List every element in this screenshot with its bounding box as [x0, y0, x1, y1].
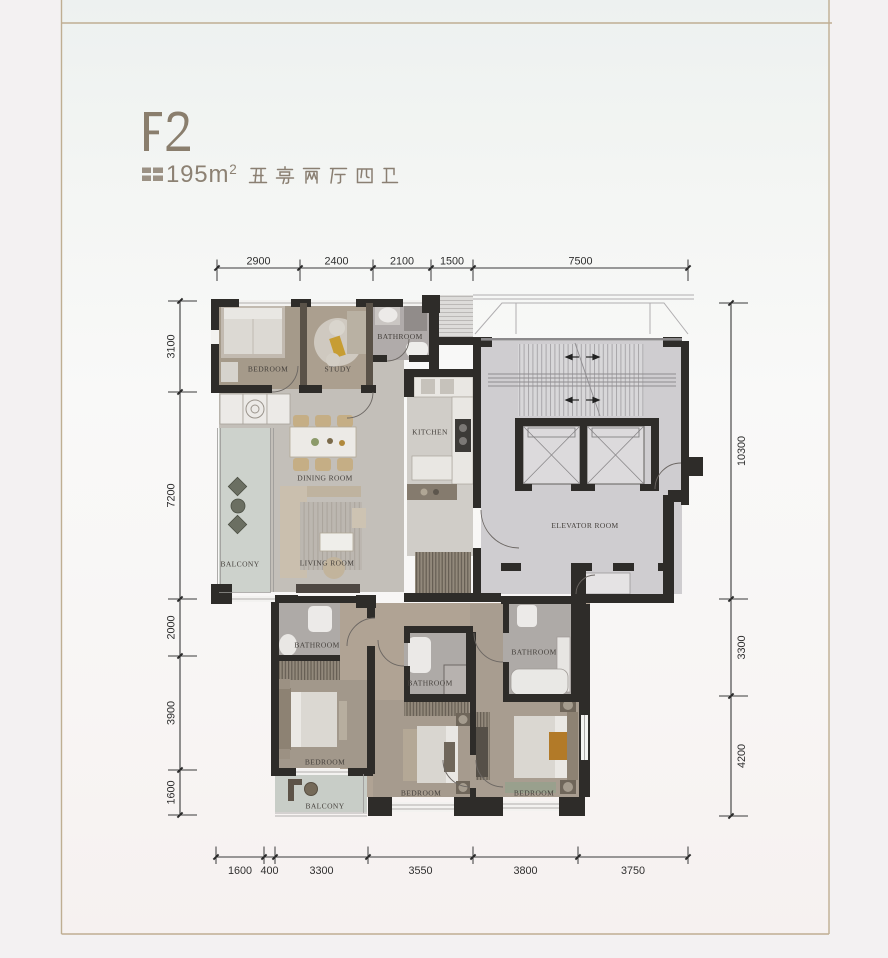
svg-text:195m2: 195m2 — [166, 161, 238, 188]
svg-text:2000: 2000 — [166, 615, 178, 639]
svg-text:1600: 1600 — [228, 865, 252, 877]
svg-text:2100: 2100 — [390, 256, 414, 268]
svg-text:3300: 3300 — [309, 865, 333, 877]
svg-text:2900: 2900 — [246, 256, 270, 268]
svg-text:BATHROOM: BATHROOM — [407, 679, 452, 688]
svg-text:3750: 3750 — [621, 865, 645, 877]
svg-text:3550: 3550 — [408, 865, 432, 877]
svg-text:BEDROOM: BEDROOM — [514, 789, 554, 798]
svg-text:BATHROOM: BATHROOM — [377, 332, 422, 341]
svg-text:1500: 1500 — [440, 256, 464, 268]
svg-text:BALCONY: BALCONY — [305, 802, 344, 811]
svg-text:10300: 10300 — [736, 436, 748, 466]
svg-text:2400: 2400 — [324, 256, 348, 268]
svg-text:ELEVATOR ROOM: ELEVATOR ROOM — [551, 521, 618, 530]
svg-text:3300: 3300 — [736, 635, 748, 659]
svg-text:400: 400 — [260, 865, 278, 877]
svg-text:3900: 3900 — [166, 701, 178, 725]
svg-text:BATHROOM: BATHROOM — [511, 648, 556, 657]
svg-text:BEDROOM: BEDROOM — [248, 365, 288, 374]
svg-text:7500: 7500 — [568, 256, 592, 268]
svg-text:1600: 1600 — [166, 780, 178, 804]
svg-text:3100: 3100 — [166, 334, 178, 358]
svg-text:BALCONY: BALCONY — [220, 560, 259, 569]
svg-text:BEDROOM: BEDROOM — [401, 789, 441, 798]
svg-text:DINING ROOM: DINING ROOM — [297, 474, 352, 483]
svg-text:7200: 7200 — [166, 483, 178, 507]
svg-text:3800: 3800 — [513, 865, 537, 877]
svg-text:4200: 4200 — [736, 744, 748, 768]
svg-text:LIVING ROOM: LIVING ROOM — [300, 559, 355, 568]
svg-text:KITCHEN: KITCHEN — [412, 428, 448, 437]
svg-text:BEDROOM: BEDROOM — [305, 758, 345, 767]
svg-text:BATHROOM: BATHROOM — [294, 641, 339, 650]
svg-text:STUDY: STUDY — [324, 365, 351, 374]
